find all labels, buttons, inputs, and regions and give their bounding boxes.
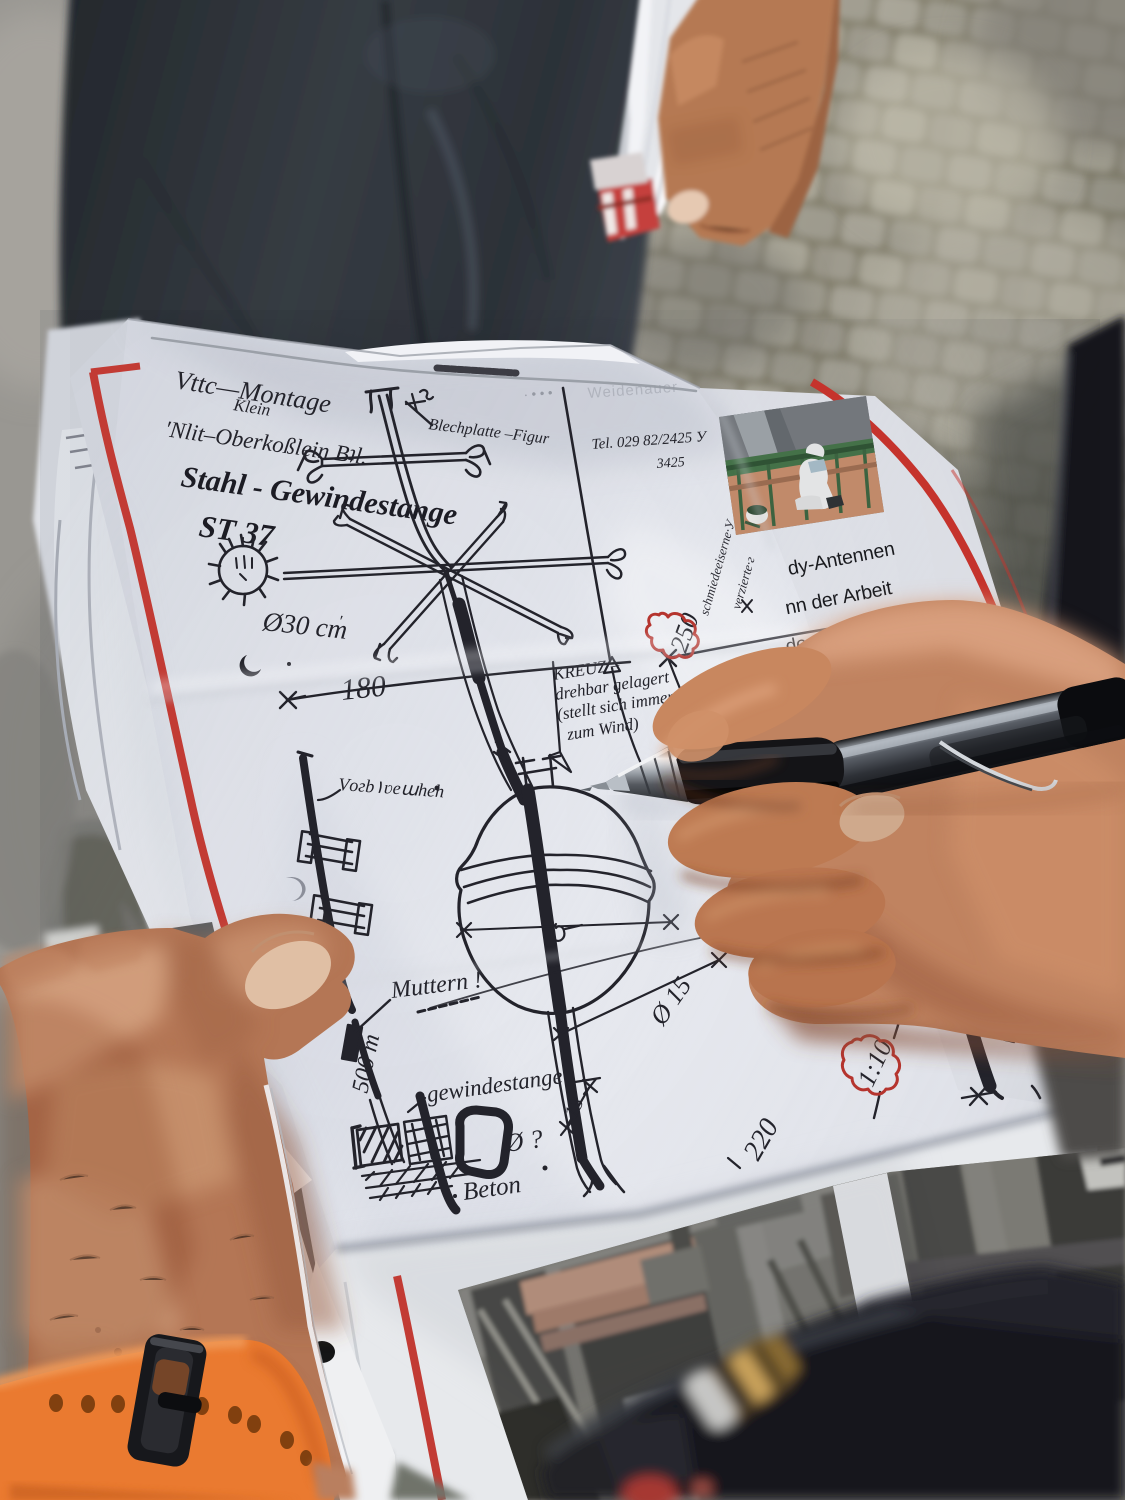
svg-text:Ø ?: Ø ? bbox=[502, 1124, 545, 1158]
svg-text:3425: 3425 bbox=[655, 455, 685, 472]
svg-text:· • • •: · • • • bbox=[523, 385, 553, 402]
